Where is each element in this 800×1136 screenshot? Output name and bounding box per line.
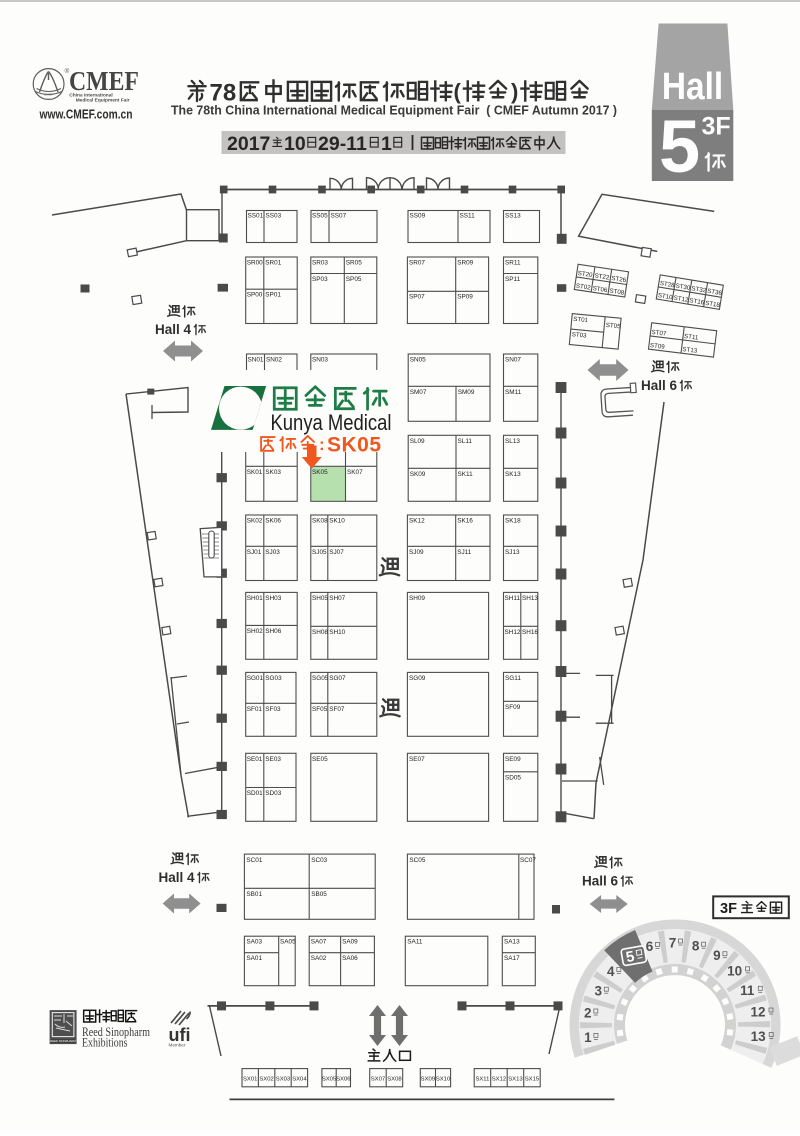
svg-text:SA17: SA17: [504, 955, 520, 962]
svg-text:SA06: SA06: [342, 955, 358, 962]
svg-text:www.CMEF.com.cn: www.CMEF.com.cn: [39, 108, 133, 122]
svg-text:2017: 2017: [227, 133, 270, 155]
svg-text:SH10: SH10: [329, 629, 345, 636]
svg-text:SA07: SA07: [311, 939, 327, 946]
svg-text:SK11: SK11: [458, 471, 474, 478]
svg-text:SX10: SX10: [436, 1076, 451, 1082]
svg-text:ST01: ST01: [573, 316, 589, 324]
svg-text:REED SINOPHARM: REED SINOPHARM: [50, 1039, 76, 1043]
svg-text:2: 2: [584, 1006, 592, 1021]
svg-text:SR03: SR03: [312, 260, 328, 267]
svg-text:SN01: SN01: [248, 357, 264, 364]
svg-text:SH02: SH02: [247, 628, 263, 635]
svg-text:SX08: SX08: [387, 1076, 402, 1082]
svg-text:SM11: SM11: [505, 389, 522, 396]
svg-text:SG09: SG09: [409, 675, 426, 682]
svg-text:SF05: SF05: [312, 706, 328, 713]
svg-text:SK08: SK08: [312, 518, 328, 525]
svg-text:SH06: SH06: [265, 628, 281, 635]
svg-text:SM07: SM07: [410, 389, 427, 396]
svg-text:SN05: SN05: [410, 357, 426, 364]
svg-text:SR09: SR09: [457, 260, 473, 267]
svg-text:6: 6: [646, 939, 654, 954]
svg-text:12: 12: [750, 1005, 765, 1020]
svg-text:SA01: SA01: [246, 955, 262, 962]
svg-text:SA05: SA05: [280, 939, 296, 946]
svg-text:SS09: SS09: [410, 213, 426, 220]
svg-text:11: 11: [740, 983, 755, 998]
svg-text:ST03: ST03: [571, 331, 587, 339]
svg-text:SX02: SX02: [259, 1076, 273, 1082]
svg-text:SH05: SH05: [312, 595, 328, 602]
svg-text:SR05: SR05: [346, 260, 362, 267]
svg-text:SK02: SK02: [247, 518, 263, 525]
svg-text:SK06: SK06: [265, 518, 281, 525]
svg-text:SS01: SS01: [248, 213, 264, 220]
svg-text:SL13: SL13: [505, 438, 520, 445]
svg-text:SM09: SM09: [458, 389, 475, 396]
svg-text:SA13: SA13: [504, 939, 520, 946]
svg-text:5: 5: [659, 105, 700, 188]
svg-text:SC01: SC01: [246, 857, 262, 864]
svg-text:SJ03: SJ03: [265, 549, 280, 556]
svg-text:SH03: SH03: [265, 595, 281, 602]
svg-text:SR07: SR07: [409, 260, 425, 267]
svg-text:SX05: SX05: [322, 1076, 337, 1082]
svg-text:Kunya Medical: Kunya Medical: [271, 410, 392, 435]
svg-text:SX13: SX13: [508, 1076, 523, 1082]
svg-text:SH08: SH08: [312, 629, 328, 636]
svg-text:SH16: SH16: [522, 629, 538, 636]
svg-text:CMEF: CMEF: [44, 93, 53, 97]
svg-text:7: 7: [669, 936, 677, 951]
svg-text:SC03: SC03: [311, 857, 327, 864]
svg-text:SS11: SS11: [460, 213, 476, 220]
svg-text:Medical Equipment Fair: Medical Equipment Fair: [76, 97, 130, 103]
svg-text:SX03: SX03: [276, 1076, 291, 1082]
svg-text:SR11: SR11: [505, 260, 521, 267]
svg-text:SX09: SX09: [421, 1076, 435, 1082]
svg-text:(: (: [454, 79, 462, 104]
svg-text:SR01: SR01: [265, 260, 281, 267]
svg-text:29-11: 29-11: [318, 133, 367, 155]
svg-text:SK05: SK05: [327, 434, 382, 457]
svg-text:SE07: SE07: [409, 756, 425, 763]
svg-text:SE03: SE03: [265, 756, 281, 763]
svg-text:SH01: SH01: [247, 595, 263, 602]
svg-text:SS03: SS03: [266, 213, 282, 220]
svg-text:3: 3: [595, 984, 603, 999]
svg-text:The 78th China International M: The 78th China International Medical Equ…: [171, 103, 617, 118]
svg-text:SP07: SP07: [409, 294, 425, 301]
svg-text:3F: 3F: [720, 901, 737, 917]
svg-text:SP01: SP01: [265, 292, 281, 299]
svg-text:SJ05: SJ05: [312, 549, 327, 556]
svg-text:): ): [511, 79, 518, 104]
svg-text:SK18: SK18: [505, 518, 521, 525]
svg-text:1: 1: [584, 1030, 592, 1045]
svg-text:SX06: SX06: [336, 1076, 351, 1082]
svg-text:SK12: SK12: [409, 518, 425, 525]
svg-text:SB05: SB05: [311, 891, 327, 898]
svg-text:Hall 4: Hall 4: [159, 870, 196, 885]
svg-text:SC07: SC07: [520, 857, 536, 864]
svg-text:Exhibitions: Exhibitions: [82, 1036, 128, 1050]
svg-text:ST05: ST05: [605, 322, 621, 330]
svg-text::: :: [319, 435, 325, 454]
svg-text:SH13: SH13: [522, 595, 538, 602]
svg-text:SG07: SG07: [329, 675, 346, 682]
svg-text:SX15: SX15: [525, 1076, 540, 1082]
svg-text:SE01: SE01: [247, 756, 263, 763]
svg-text:10: 10: [727, 963, 742, 978]
svg-text:SA03: SA03: [246, 939, 262, 946]
svg-text:SP03: SP03: [312, 276, 328, 283]
svg-text:SS05: SS05: [312, 213, 328, 220]
svg-text:Hall 4: Hall 4: [155, 322, 192, 337]
svg-text:SS13: SS13: [505, 213, 521, 220]
svg-text:SX01: SX01: [243, 1076, 257, 1082]
svg-text:SJ13: SJ13: [505, 549, 520, 556]
svg-text:SH09: SH09: [409, 595, 425, 602]
svg-text:4: 4: [607, 964, 615, 979]
svg-text:SJ07: SJ07: [329, 549, 344, 556]
svg-text:SG03: SG03: [265, 675, 282, 682]
svg-text:SA11: SA11: [407, 939, 423, 946]
svg-text:SX11: SX11: [475, 1076, 489, 1082]
svg-text:SS07: SS07: [331, 213, 347, 220]
svg-text:Hall 6: Hall 6: [582, 874, 619, 889]
svg-text:SK13: SK13: [505, 471, 521, 478]
svg-text:1: 1: [381, 133, 392, 155]
svg-text:13: 13: [751, 1029, 767, 1044]
svg-text:SD01: SD01: [247, 790, 263, 797]
svg-text:SD03: SD03: [265, 790, 281, 797]
svg-text:SG01: SG01: [247, 675, 264, 682]
svg-text:SP11: SP11: [505, 276, 521, 283]
svg-text:SJ01: SJ01: [247, 549, 262, 556]
svg-text:SF07: SF07: [329, 706, 345, 713]
svg-text:CMEF: CMEF: [69, 66, 139, 97]
svg-text:SG11: SG11: [505, 675, 521, 682]
svg-text:9: 9: [713, 948, 721, 963]
svg-text:SP05: SP05: [346, 276, 362, 283]
svg-text:10: 10: [284, 133, 306, 155]
svg-text:SL09: SL09: [410, 438, 425, 445]
svg-text:SJ09: SJ09: [409, 549, 424, 556]
svg-text:SK09: SK09: [410, 471, 426, 478]
svg-text:SD05: SD05: [505, 774, 521, 781]
svg-text:SB01: SB01: [246, 891, 262, 898]
svg-text:SK01: SK01: [247, 469, 263, 476]
svg-text:SF09: SF09: [505, 704, 521, 711]
svg-text:SA09: SA09: [342, 939, 358, 946]
svg-text:SK05: SK05: [312, 469, 328, 476]
svg-text:SP09: SP09: [457, 294, 473, 301]
svg-text:3F: 3F: [702, 113, 731, 141]
svg-text:SR00: SR00: [247, 260, 263, 267]
svg-text:SX04: SX04: [292, 1076, 307, 1082]
svg-text:SH07: SH07: [329, 595, 345, 602]
svg-text:SE05: SE05: [312, 756, 328, 763]
svg-text:Member: Member: [169, 1043, 186, 1048]
svg-text:SH11: SH11: [505, 595, 521, 602]
svg-text:SK03: SK03: [265, 469, 281, 476]
svg-text:8: 8: [692, 939, 700, 954]
svg-text:SA02: SA02: [311, 955, 327, 962]
svg-text:SC05: SC05: [409, 857, 425, 864]
svg-text:SE09: SE09: [505, 756, 521, 763]
svg-text:SX12: SX12: [492, 1076, 506, 1082]
svg-text:SN03: SN03: [312, 357, 328, 364]
svg-text:SN02: SN02: [266, 357, 282, 364]
svg-text:SL11: SL11: [458, 438, 473, 445]
svg-text:Hall 6: Hall 6: [641, 378, 678, 393]
svg-text:SH12: SH12: [505, 629, 521, 636]
svg-text:SG05: SG05: [312, 675, 329, 682]
svg-text:SP00: SP00: [247, 292, 263, 299]
svg-text:SX07: SX07: [371, 1076, 385, 1082]
svg-text:SF01: SF01: [247, 706, 263, 713]
svg-text:SJ11: SJ11: [457, 549, 472, 556]
svg-text:SK10: SK10: [329, 518, 345, 525]
svg-text:SK07: SK07: [347, 469, 363, 476]
svg-text:SN07: SN07: [505, 357, 521, 364]
svg-text:SF03: SF03: [265, 706, 281, 713]
svg-text:Hall: Hall: [662, 65, 723, 107]
svg-text:SK16: SK16: [457, 518, 473, 525]
